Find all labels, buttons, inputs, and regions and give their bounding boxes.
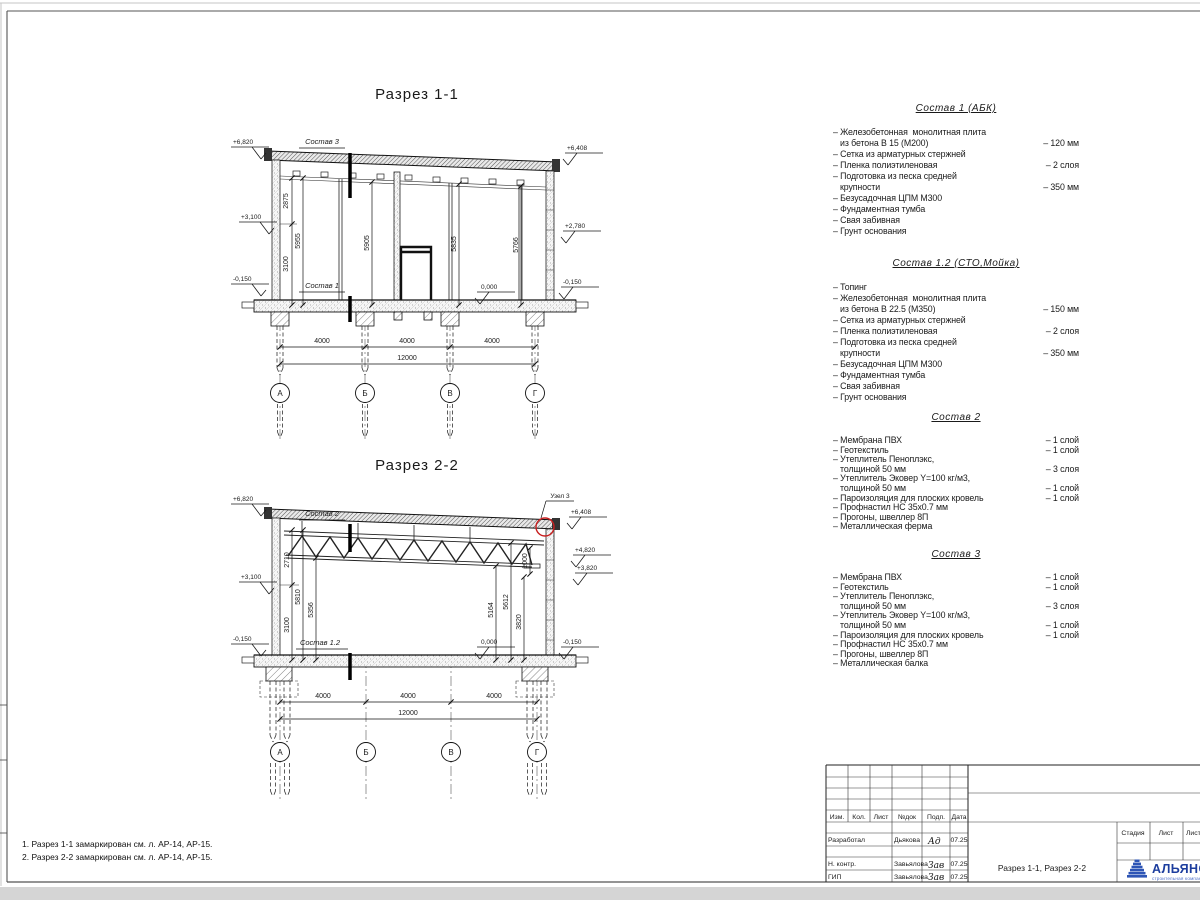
composition-row: – Фундаментная тумба — [833, 370, 1079, 381]
composition-row: – Пленка полиэтиленовая– 2 слоя — [833, 160, 1079, 171]
composition-title: Состав 1.2 (СТО,Мойка) — [833, 258, 1079, 269]
signature: Зав — [928, 861, 944, 871]
svg-text:А: А — [277, 748, 283, 757]
svg-text:3820: 3820 — [516, 614, 523, 630]
svg-text:4000: 4000 — [399, 338, 415, 345]
composition-row: – Грунт основания — [833, 392, 1079, 403]
note-line: 2. Разрез 2-2 замаркирован см. л. АР-14,… — [22, 851, 212, 864]
svg-text:Б: Б — [363, 748, 368, 757]
svg-text:Разработал: Разработал — [828, 836, 865, 844]
svg-text:+3,100: +3,100 — [241, 574, 261, 581]
svg-text:1000: 1000 — [522, 553, 529, 569]
svg-text:Лист: Лист — [1159, 830, 1174, 837]
svg-text:+6,408: +6,408 — [571, 509, 591, 516]
composition-row: – Подготовка из песка средней — [833, 337, 1079, 348]
composition-row: – Безусадочная ЦПМ М300 — [833, 359, 1079, 370]
svg-text:0,000: 0,000 — [481, 284, 498, 291]
wall-left-2 — [272, 518, 280, 655]
comp2-flag-label: Состав 2 — [305, 509, 340, 518]
svg-text:+6,408: +6,408 — [567, 145, 587, 152]
svg-text:5164: 5164 — [488, 602, 495, 618]
section-2-2-drawing: Разрез 2-2 — [231, 457, 613, 800]
company-subtitle: строительная компания — [1152, 876, 1200, 881]
svg-text:-0,150: -0,150 — [563, 279, 582, 286]
signature: Зав — [928, 873, 944, 883]
sheet-notes: 1. Разрез 1-1 замаркирован см. л. АР-14,… — [22, 838, 212, 864]
composition-row: – Фундаментная тумба — [833, 204, 1079, 215]
section-1-1-drawing: Разрез 1-1 — [231, 86, 603, 440]
composition-row: – Металлическая балка — [833, 659, 1079, 669]
company-name: АЛЬЯНС — [1152, 862, 1200, 876]
svg-text:4000: 4000 — [400, 693, 416, 700]
node-3-label: Узел 3 — [550, 493, 570, 500]
composition-row: из бетона В 15 (М200)– 120 мм — [833, 138, 1079, 149]
composition-row: – Свая забивная — [833, 381, 1079, 392]
composition-rows: – Мембрана ПВХ– 1 слой– Геотекстиль– 1 с… — [833, 573, 1079, 669]
composition-row: – Подготовка из песка средней — [833, 171, 1079, 182]
door-frame — [401, 247, 431, 300]
section-2-2-title: Разрез 2-2 — [375, 457, 459, 474]
composition-row: крупности– 350 мм — [833, 182, 1079, 193]
foundation-caps-2 — [266, 667, 548, 681]
composition-rows: – Топинг– Железобетонная монолитная плит… — [833, 282, 1079, 403]
svg-text:-0,150: -0,150 — [563, 639, 582, 646]
composition-row: крупности– 350 мм — [833, 348, 1079, 359]
composition-row: – Сетка из арматурных стержней — [833, 315, 1079, 326]
composition-list-4: Состав 3 – Мембрана ПВХ– 1 слой– Геотекс… — [833, 549, 1079, 669]
svg-text:Б: Б — [362, 389, 367, 398]
svg-text:5955: 5955 — [295, 233, 302, 249]
wall-left — [272, 160, 280, 300]
svg-text:4000: 4000 — [486, 693, 502, 700]
svg-text:Подп.: Подп. — [927, 814, 945, 821]
svg-text:ГИП: ГИП — [828, 874, 842, 881]
svg-text:2710: 2710 — [284, 552, 291, 568]
composition-title: Состав 1 (АБК) — [833, 103, 1079, 114]
svg-text:Н. контр.: Н. контр. — [828, 861, 856, 868]
comp1-flag-label: Состав 1 — [305, 281, 339, 290]
svg-text:+3,100: +3,100 — [241, 214, 261, 221]
svg-text:12000: 12000 — [398, 710, 418, 717]
svg-text:А: А — [277, 389, 283, 398]
svg-text:+3,820: +3,820 — [577, 565, 597, 572]
svg-text:5905: 5905 — [364, 235, 371, 251]
doc-title: Разрез 1-1, Разрез 2-2 — [998, 863, 1086, 873]
svg-text:07.25: 07.25 — [950, 837, 967, 844]
roof-slab — [268, 151, 558, 171]
partition-wall — [394, 172, 400, 300]
section-1-1-title: Разрез 1-1 — [375, 86, 459, 103]
svg-text:5612: 5612 — [503, 594, 510, 610]
svg-text:07.25: 07.25 — [950, 874, 967, 881]
svg-text:+6,820: +6,820 — [233, 139, 253, 146]
composition-row: – Топинг — [833, 282, 1079, 293]
svg-text:Лист: Лист — [874, 814, 889, 821]
company-logo-icon — [1127, 860, 1147, 878]
composition-row: – Железобетонная монолитная плита — [833, 127, 1079, 138]
note-line: 1. Разрез 1-1 замаркирован см. л. АР-14,… — [22, 838, 212, 851]
parapet-right — [552, 159, 560, 172]
svg-text:5810: 5810 — [295, 589, 302, 605]
wall-right — [546, 171, 554, 300]
composition-row: – Грунт основания — [833, 226, 1079, 237]
svg-text:Дата: Дата — [951, 814, 966, 821]
svg-text:3100: 3100 — [284, 617, 291, 633]
pile-caps — [271, 312, 544, 326]
svg-text:-0,150: -0,150 — [233, 636, 252, 643]
svg-text:Листов: Листов — [1186, 830, 1200, 837]
svg-text:12000: 12000 — [397, 355, 417, 362]
steel-truss — [284, 521, 544, 568]
composition-row: – Безусадочная ЦПМ М300 — [833, 193, 1079, 204]
svg-text:5766: 5766 — [513, 237, 520, 253]
svg-text:Г: Г — [533, 389, 538, 398]
svg-text:Изм.: Изм. — [830, 814, 845, 821]
svg-text:5835: 5835 — [451, 236, 458, 252]
svg-text:Г: Г — [535, 748, 540, 757]
axis-bubbles-1-1: А Б В Г — [271, 384, 545, 403]
composition-list-1: Состав 1 (АБК) – Железобетонная монолитн… — [833, 103, 1079, 237]
svg-text:4000: 4000 — [484, 338, 500, 345]
composition-rows: – Мембрана ПВХ– 1 слой– Геотекстиль– 1 с… — [833, 436, 1079, 532]
svg-text:+4,820: +4,820 — [575, 547, 595, 554]
svg-text:-0,150: -0,150 — [233, 276, 252, 283]
svg-text:В: В — [447, 389, 452, 398]
svg-text:Стадия: Стадия — [1121, 830, 1144, 837]
svg-text:Завьялова: Завьялова — [894, 874, 928, 881]
composition-rows: – Железобетонная монолитная плита из бет… — [833, 127, 1079, 237]
axis-bubbles-2-2: А Б В Г — [271, 743, 547, 762]
drawing-sheet: Разрез 1-1 — [0, 0, 1200, 887]
composition-list-2: Состав 1.2 (СТО,Мойка) – Топинг– Железоб… — [833, 258, 1079, 403]
svg-text:№док: №док — [898, 814, 916, 821]
svg-text:Кол.: Кол. — [852, 814, 866, 821]
svg-text:07.25: 07.25 — [950, 861, 967, 868]
composition-row: – Свая забивная — [833, 215, 1079, 226]
composition-row: – Металлическая ферма — [833, 522, 1079, 532]
svg-text:Завьялова: Завьялова — [894, 861, 928, 868]
svg-text:4000: 4000 — [315, 693, 331, 700]
composition-title: Состав 2 — [833, 412, 1079, 423]
svg-text:3100: 3100 — [283, 256, 290, 272]
svg-text:+6,820: +6,820 — [233, 496, 253, 503]
svg-text:В: В — [448, 748, 453, 757]
composition-row: из бетона В 22.5 (М350)– 150 мм — [833, 304, 1079, 315]
svg-text:+2,780: +2,780 — [565, 223, 585, 230]
drawing-page: Разрез 1-1 — [0, 0, 1200, 900]
wall-right-2 — [546, 529, 554, 655]
ceiling-lines — [280, 176, 546, 190]
composition-title: Состав 3 — [833, 549, 1079, 560]
svg-text:4000: 4000 — [314, 338, 330, 345]
composition-row: – Железобетонная монолитная плита — [833, 293, 1079, 304]
signature: Ад — [927, 837, 941, 847]
svg-text:0,000: 0,000 — [481, 639, 498, 646]
svg-text:Дьякова: Дьякова — [894, 837, 920, 844]
composition-row: – Пленка полиэтиленовая– 2 слоя — [833, 326, 1079, 337]
title-block: Изм. Кол. Лист №док Подп. Дата Разработа… — [826, 765, 1200, 883]
svg-text:5356: 5356 — [308, 602, 315, 618]
svg-text:2875: 2875 — [283, 193, 290, 209]
composition-row: – Сетка из арматурных стержней — [833, 149, 1079, 160]
comp12-flag-label: Состав 1.2 — [300, 638, 341, 647]
composition-list-3: Состав 2 – Мембрана ПВХ– 1 слой– Геотекс… — [833, 412, 1079, 532]
comp3-flag-label: Состав 3 — [305, 137, 340, 146]
